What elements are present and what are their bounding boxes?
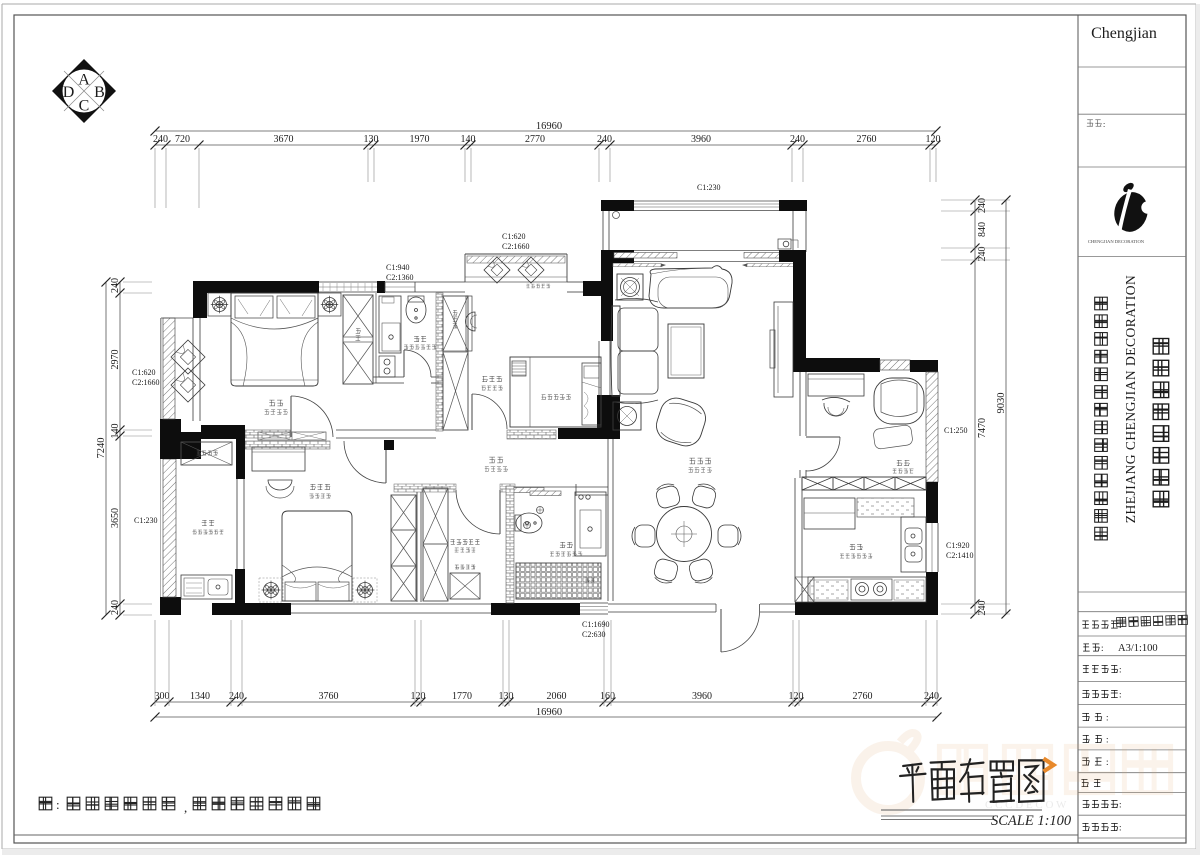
svg-text:2970: 2970 (110, 350, 121, 370)
svg-text:130: 130 (364, 134, 379, 145)
svg-text:3960: 3960 (692, 691, 712, 702)
svg-text:840: 840 (977, 222, 988, 237)
svg-text:C: C (79, 98, 90, 115)
svg-text:C1:250: C1:250 (944, 426, 968, 435)
svg-text:120: 120 (411, 691, 426, 702)
svg-text:SCALE 1:100: SCALE 1:100 (991, 813, 1072, 829)
svg-text:C2:1360: C2:1360 (386, 273, 414, 282)
svg-text:1770: 1770 (452, 691, 472, 702)
svg-text::: : (56, 797, 60, 812)
svg-text:16960: 16960 (536, 707, 562, 718)
svg-text:120: 120 (926, 134, 941, 145)
svg-text:D: D (63, 84, 75, 101)
svg-text:2760: 2760 (857, 134, 877, 145)
svg-text:C1:620: C1:620 (502, 232, 526, 241)
svg-text::: : (1106, 713, 1109, 723)
svg-text:C1:920: C1:920 (946, 541, 970, 550)
svg-text:3650: 3650 (110, 508, 121, 528)
svg-text:C2:1660: C2:1660 (132, 378, 160, 387)
svg-text:300: 300 (155, 691, 170, 702)
svg-text:C1:940: C1:940 (386, 263, 410, 272)
svg-text:Chengjian: Chengjian (1091, 25, 1157, 42)
svg-text:240: 240 (977, 601, 988, 616)
svg-text:240: 240 (110, 600, 121, 615)
svg-text:720: 720 (175, 134, 190, 145)
svg-text:C2:1660: C2:1660 (502, 242, 530, 251)
svg-text::: : (1119, 823, 1122, 833)
svg-text:C1:230: C1:230 (697, 183, 721, 192)
svg-text:C2:630: C2:630 (582, 630, 606, 639)
svg-text:B: B (94, 84, 105, 101)
svg-text:3960: 3960 (691, 134, 711, 145)
svg-text:240: 240 (977, 247, 988, 262)
svg-text:3760: 3760 (319, 691, 339, 702)
svg-text:160: 160 (600, 691, 615, 702)
svg-text:140: 140 (110, 424, 121, 439)
svg-text:7240: 7240 (96, 438, 107, 459)
svg-text:C1:620: C1:620 (132, 368, 156, 377)
svg-text:130: 130 (499, 691, 514, 702)
svg-text:C2:1410: C2:1410 (946, 551, 974, 560)
svg-text::: : (1119, 665, 1122, 675)
svg-text:9030: 9030 (996, 393, 1007, 414)
svg-text:7470: 7470 (977, 418, 988, 438)
svg-text::: : (1106, 757, 1109, 767)
svg-text::: : (1119, 800, 1122, 810)
svg-text:240: 240 (153, 134, 168, 145)
svg-text:240: 240 (790, 134, 805, 145)
svg-text:C1:230: C1:230 (134, 516, 158, 525)
svg-text:A3/1:100: A3/1:100 (1118, 643, 1158, 654)
svg-text::: : (1106, 735, 1109, 745)
svg-text:240: 240 (110, 278, 121, 293)
svg-text:,: , (184, 800, 187, 815)
svg-text:140: 140 (461, 134, 476, 145)
svg-text::: : (1103, 120, 1105, 129)
svg-text:A: A (78, 72, 90, 89)
svg-text:CHENGJIAN DECORATION: CHENGJIAN DECORATION (1088, 239, 1145, 244)
svg-text:3670: 3670 (274, 134, 294, 145)
svg-text:16960: 16960 (536, 121, 562, 132)
svg-text:120: 120 (789, 691, 804, 702)
svg-text::: : (1119, 690, 1122, 700)
svg-text:2770: 2770 (525, 134, 545, 145)
svg-text:C1:1690: C1:1690 (582, 620, 610, 629)
svg-text:1340: 1340 (190, 691, 210, 702)
svg-text:240: 240 (597, 134, 612, 145)
svg-text:ZHEJIANG CHENGJIAN DECORATION: ZHEJIANG CHENGJIAN DECORATION (1123, 275, 1138, 523)
svg-text::: : (1101, 643, 1104, 653)
svg-text:2760: 2760 (853, 691, 873, 702)
svg-text:2060: 2060 (547, 691, 567, 702)
svg-text:1970: 1970 (410, 134, 430, 145)
